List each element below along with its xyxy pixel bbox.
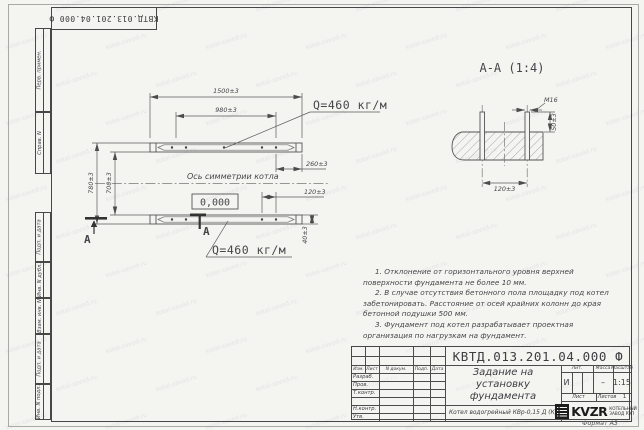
- sheets-value: 1: [618, 393, 631, 401]
- frame-cell-text: Подп. и дата: [37, 341, 43, 376]
- section-view: А-А (1:4) М16 50±3 120±3: [440, 60, 640, 195]
- lit-value: И: [561, 372, 572, 393]
- frame-cell-label: Инв. N дубл.: [36, 263, 44, 297]
- sheets-label: Листов: [596, 393, 618, 401]
- lit-label: Лит.: [561, 365, 593, 372]
- dim-text: 780±3: [87, 172, 95, 194]
- titleblock-grid-line: [413, 347, 414, 421]
- product-name: Котел водогрейный КВр-0,15 Д (К): [445, 405, 561, 421]
- row-utv: Утв.: [353, 413, 379, 421]
- dimension-980: 980±3: [176, 106, 276, 138]
- titleblock-grid-line: [445, 347, 446, 421]
- dim-text: 120±3: [304, 188, 326, 196]
- dimension-700: 700±3: [105, 152, 150, 215]
- dimension-260: 260±3: [276, 154, 328, 172]
- note-1: 1. Отклонение от горизонтального уровня …: [363, 267, 609, 288]
- scale-label: Масштаб: [613, 365, 631, 372]
- titleblock-grid-line: [430, 347, 431, 421]
- frame-cell-text: Инв. N подл.: [37, 385, 43, 419]
- frame-cell-text: Перв. примен.: [37, 51, 43, 90]
- level-mark: 0,000: [192, 194, 238, 209]
- section-mark-1: А: [84, 217, 107, 246]
- titleblock-grid-line: [352, 365, 631, 366]
- titleblock-grid-line: [352, 405, 561, 406]
- titleblock-grid-line: [561, 401, 631, 402]
- doc-title: Задание на установку фундамента: [445, 365, 561, 405]
- title-block: КВТД.013.201.04.000 Ф Задание на установ…: [351, 346, 630, 420]
- dimension-120-section: 120±3: [482, 183, 527, 193]
- col-podp: Подп.: [413, 365, 430, 373]
- top-stamp-text: КВТД.013.201.04.000 Ф: [49, 14, 159, 23]
- dim-text: 1500±3: [213, 87, 239, 95]
- frame-cell-label: Инв. N подл.: [36, 385, 44, 419]
- load-text: Q=460 кг/м: [313, 98, 387, 112]
- dim-text: 50±3: [550, 113, 558, 131]
- frame-cell-vzam-inv: Взам. инв. N: [35, 298, 51, 334]
- row-prov: Пров.: [353, 381, 379, 389]
- note-2: 2. В случае отсутствия бетонного пола пл…: [363, 288, 609, 320]
- frame-cell-inv-dubl: Инв. N дубл.: [35, 262, 51, 298]
- titleblock-grid-line: [352, 356, 445, 357]
- frame-cell-label: Справ. N: [36, 113, 44, 173]
- top-stamp-box: КВТД.013.201.04.000 Ф: [51, 7, 157, 30]
- logo-text: KVZR: [571, 404, 607, 419]
- frame-cell-perv-primen: Перв. примен.: [35, 28, 51, 112]
- plan-view: Ось симметрии котла 1500±3 980±3 780±3 7…: [80, 80, 400, 270]
- dim-text: 40±3: [301, 226, 309, 244]
- row-nkontr: Н.контр.: [353, 405, 379, 413]
- level-text: 0,000: [200, 198, 230, 209]
- kvzr-logo-emblem: [555, 404, 569, 419]
- dim-text: 980±3: [215, 106, 237, 114]
- titleblock-grid-line: [352, 381, 445, 382]
- frame-cell-text: Справ. N: [37, 131, 43, 155]
- frame-cell-label: Подп. и дата: [36, 335, 44, 383]
- col-izm: Изм.: [352, 365, 365, 373]
- titleblock-grid-line: [593, 365, 594, 393]
- titleblock-grid-line: [561, 372, 631, 373]
- frame-cell-inv-podl: Инв. N подл.: [35, 384, 51, 420]
- mass-value: –: [593, 372, 613, 393]
- section-letter: А: [203, 225, 210, 238]
- load-callout-top: Q=460 кг/м: [225, 98, 387, 148]
- row-tkontr: Т.контр.: [353, 389, 379, 397]
- frame-cell-label: Взам. инв. N: [36, 299, 44, 333]
- frame-cell-podp-data-2: Подп. и дата: [35, 334, 51, 384]
- col-data: Дата: [430, 365, 445, 373]
- titleblock-grid-line: [613, 365, 614, 393]
- note-3: 3. Фундамент под котел разрабатывает про…: [363, 320, 609, 341]
- frame-cell-sprav-n: Справ. N: [35, 112, 51, 174]
- frame-cell-label: Перв. примен.: [36, 29, 44, 111]
- titleblock-grid-line: [379, 347, 380, 421]
- frame-cell-text: Подп. и дата: [37, 219, 43, 254]
- frame-cell-label: Подп. и дата: [36, 213, 44, 261]
- format-label: Формат А3: [565, 420, 635, 429]
- titleblock-grid-line: [352, 397, 445, 398]
- section-letter: А: [84, 233, 91, 246]
- axis-of-symmetry: Ось симметрии котла: [95, 172, 330, 184]
- titleblock-grid-line: [352, 373, 445, 374]
- sheet-label: Лист: [561, 393, 596, 401]
- axis-label: Ось симметрии котла: [187, 172, 279, 181]
- bottom-rail: [150, 215, 302, 224]
- bolt-thread-callout: М16: [512, 96, 558, 110]
- frame-cell-text: Инв. N дубл.: [37, 263, 43, 297]
- doc-number: КВТД.013.201.04.000 Ф: [445, 347, 631, 365]
- titleblock-grid-line: [582, 372, 583, 393]
- section-title: А-А (1:4): [479, 61, 544, 75]
- dimension-40: 40±3: [301, 215, 318, 244]
- titleblock-grid-line: [596, 393, 597, 401]
- dimension-50: 50±3: [531, 112, 558, 132]
- technical-notes: 1. Отклонение от горизонтального уровня …: [363, 267, 609, 341]
- scale-value: 1:15: [613, 372, 631, 393]
- load-callout-bottom: Q=460 кг/м: [206, 221, 292, 257]
- titleblock-grid-line: [365, 347, 366, 373]
- dim-text: 260±3: [306, 160, 328, 168]
- dimension-120-plan: 120±3: [262, 188, 326, 213]
- frame-cell-text: Взам. инв. N: [37, 299, 43, 333]
- dim-text: 700±3: [105, 172, 113, 194]
- titleblock-grid-line: [572, 372, 573, 393]
- load-text: Q=460 кг/м: [212, 243, 286, 257]
- company-logo: KVZR КОТЕЛЬНЫЙ ЗАВОД РЭП: [561, 401, 631, 421]
- mass-label: Масса: [593, 365, 613, 372]
- titleblock-grid-line: [352, 413, 445, 414]
- row-razrab: Разраб.: [353, 373, 379, 381]
- dim-text: 120±3: [494, 185, 516, 193]
- drawing-sheet: kotel-zavod.rukotel-zavod.rukotel-zavod.…: [0, 0, 644, 430]
- titleblock-grid-line: [352, 389, 445, 390]
- titleblock-grid-line: [561, 393, 631, 394]
- section-mark-2: А: [190, 214, 210, 239]
- col-list: Лист: [365, 365, 379, 373]
- logo-subtitle-2: ЗАВОД РЭП: [609, 411, 636, 416]
- col-ndokum: N докум.: [379, 365, 413, 373]
- dim-text: М16: [544, 96, 558, 104]
- frame-cell-podp-data-1: Подп. и дата: [35, 212, 51, 262]
